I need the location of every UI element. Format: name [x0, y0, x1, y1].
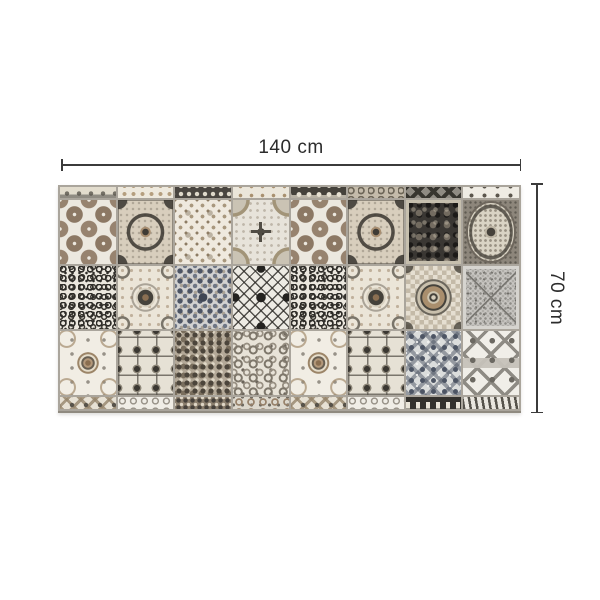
tile-ornate-frame: [348, 200, 404, 264]
width-dimension-rule: [61, 164, 521, 166]
height-dimension-label: 70 cm: [544, 183, 568, 413]
tile-circles: [291, 200, 347, 264]
tile-gem-frames: [118, 331, 174, 395]
tile-rug-image: [58, 185, 521, 413]
tile-rococo: [60, 331, 116, 395]
border-strip-bs4: [233, 397, 289, 409]
tile-sunflower: [348, 266, 404, 330]
border-strip-bs2: [118, 397, 174, 409]
tile-gem-frames: [348, 331, 404, 395]
tile-dense-floral: [175, 331, 231, 395]
border-strip-bs1: [60, 397, 116, 409]
tile-target-medallion: [406, 266, 462, 330]
border-strip-ts4: [233, 187, 289, 198]
tile-speckled-x: [463, 266, 519, 330]
border-strip-ts3: [175, 187, 231, 198]
border-strip-ts1: [60, 187, 116, 198]
tile-circle-cross: [233, 200, 289, 264]
border-strip-ts8: [463, 187, 519, 198]
tile-ornate-frame: [118, 200, 174, 264]
dimension-tick-right: [520, 159, 522, 171]
tile-argyle: [233, 266, 289, 330]
border-strip-ts6: [348, 187, 404, 198]
border-strip-bs7: [406, 397, 462, 409]
border-strip-bs8: [463, 397, 519, 409]
tile-rococo: [291, 331, 347, 395]
tile-diamond-damask: [406, 331, 462, 395]
height-dimension-rule: [536, 183, 538, 413]
border-strip-ts2: [118, 187, 174, 198]
tile-scroll-vine: [60, 266, 116, 330]
border-strip-ts7: [406, 187, 462, 198]
tile-quatrefoil-trellis: [463, 331, 519, 395]
tile-lace-medallion: [463, 200, 519, 264]
border-strip-bs1: [291, 397, 347, 409]
tile-scroll-vine: [291, 266, 347, 330]
product-diagram-canvas: 140 cm 70 cm: [0, 0, 600, 600]
width-dimension-label: 140 cm: [61, 137, 521, 159]
tile-kaleidoscope: [175, 266, 231, 330]
tile-floral-lattice: [175, 200, 231, 264]
border-strip-bs3: [175, 397, 231, 409]
tile-paisley: [233, 331, 289, 395]
tile-sunflower: [118, 266, 174, 330]
border-strip-ts5: [291, 187, 347, 198]
width-dimension-line: [61, 159, 521, 171]
tile-circles: [60, 200, 116, 264]
height-dimension-line: [531, 183, 543, 413]
border-strip-bs2: [348, 397, 404, 409]
tile-dark-damask: [406, 200, 462, 264]
dimension-tick-bottom: [531, 412, 543, 414]
